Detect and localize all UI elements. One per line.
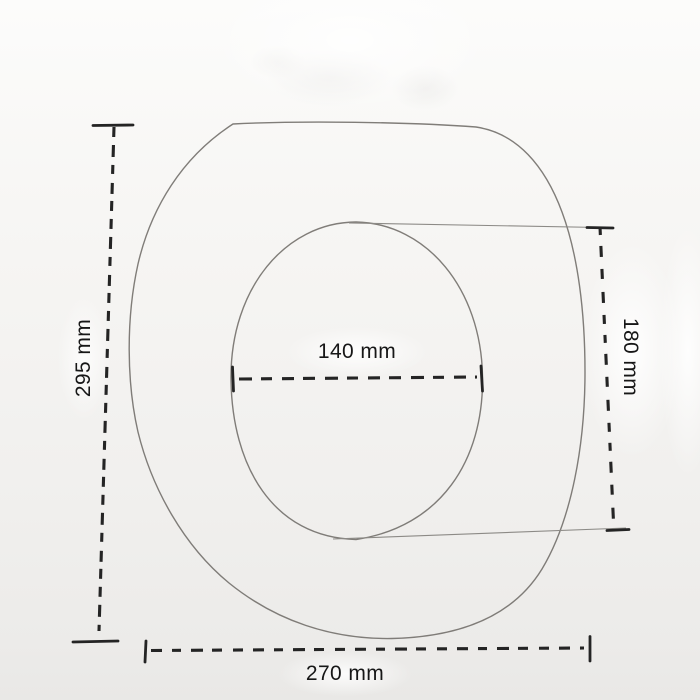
- inner-width-dimension: [233, 366, 483, 391]
- scanned-dimension-drawing: 295 mm 180 mm 140 mm 270 mm: [0, 0, 700, 700]
- inner-height-label: 180 mm: [618, 318, 642, 396]
- inner-width-right-tick: [481, 366, 483, 391]
- outer-width-left-tick: [145, 641, 146, 662]
- inner-height-bottom-tick: [607, 530, 629, 531]
- outer-seat-outline: [129, 122, 585, 638]
- inner-width-dashed-line: [239, 377, 477, 379]
- inner-height-dashed-line: [600, 227, 614, 522]
- outer-width-label: 270 mm: [306, 662, 384, 686]
- outer-height-bottom-tick: [73, 641, 118, 642]
- inner-width-label: 140 mm: [318, 340, 396, 364]
- outer-height-dashed-line: [99, 127, 114, 631]
- outer-height-top-tick: [93, 125, 133, 126]
- inner-opening-outline: [231, 222, 483, 540]
- inner-width-left-tick: [233, 367, 234, 391]
- outer-width-dashed-line: [151, 648, 584, 651]
- projection-line-bottom: [333, 528, 626, 539]
- outer-height-label: 295 mm: [72, 319, 96, 397]
- outer-width-dimension: [145, 637, 590, 663]
